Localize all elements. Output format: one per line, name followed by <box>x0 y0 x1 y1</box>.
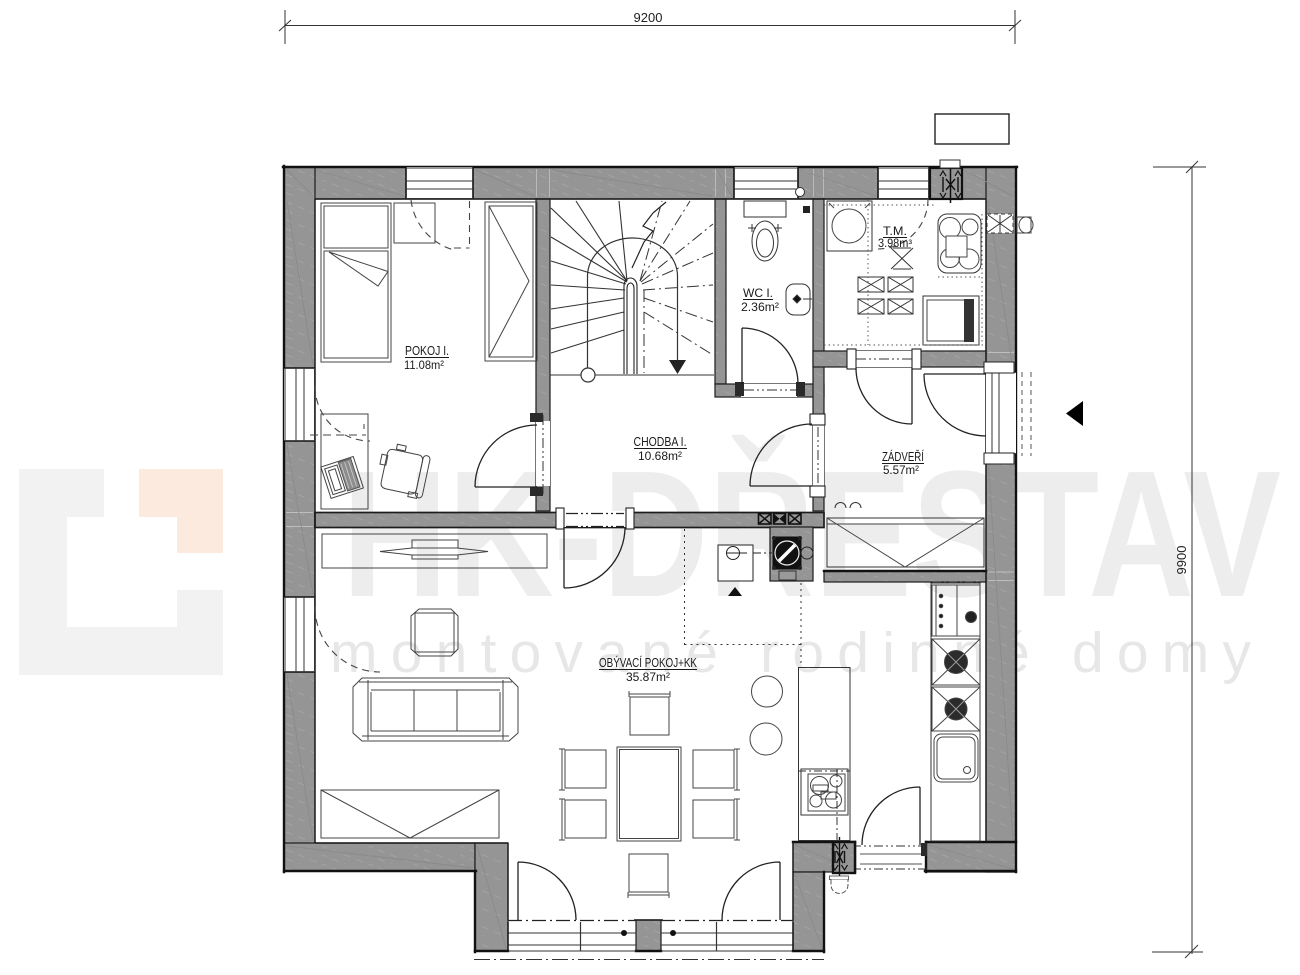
svg-text:10.68m²: 10.68m² <box>638 449 682 463</box>
svg-text:3.98m³: 3.98m³ <box>878 238 912 250</box>
svg-text:ZÁDVEŘÍ: ZÁDVEŘÍ <box>882 449 924 464</box>
svg-text:POKOJ I.: POKOJ I. <box>405 344 449 358</box>
svg-text:5.57m²: 5.57m² <box>883 463 919 477</box>
svg-text:11.08m²: 11.08m² <box>404 358 444 372</box>
svg-text:9200: 9200 <box>634 10 663 25</box>
svg-text:35.87m²: 35.87m² <box>626 670 670 684</box>
svg-text:OBÝVACÍ POKOJ+KK: OBÝVACÍ POKOJ+KK <box>599 655 698 670</box>
svg-text:CHODBA I.: CHODBA I. <box>634 435 687 449</box>
svg-text:9900: 9900 <box>1174 546 1189 575</box>
svg-text:T.M.: T.M. <box>883 226 907 238</box>
svg-text:WC I.: WC I. <box>743 286 773 300</box>
svg-text:2.36m²: 2.36m² <box>741 300 779 314</box>
